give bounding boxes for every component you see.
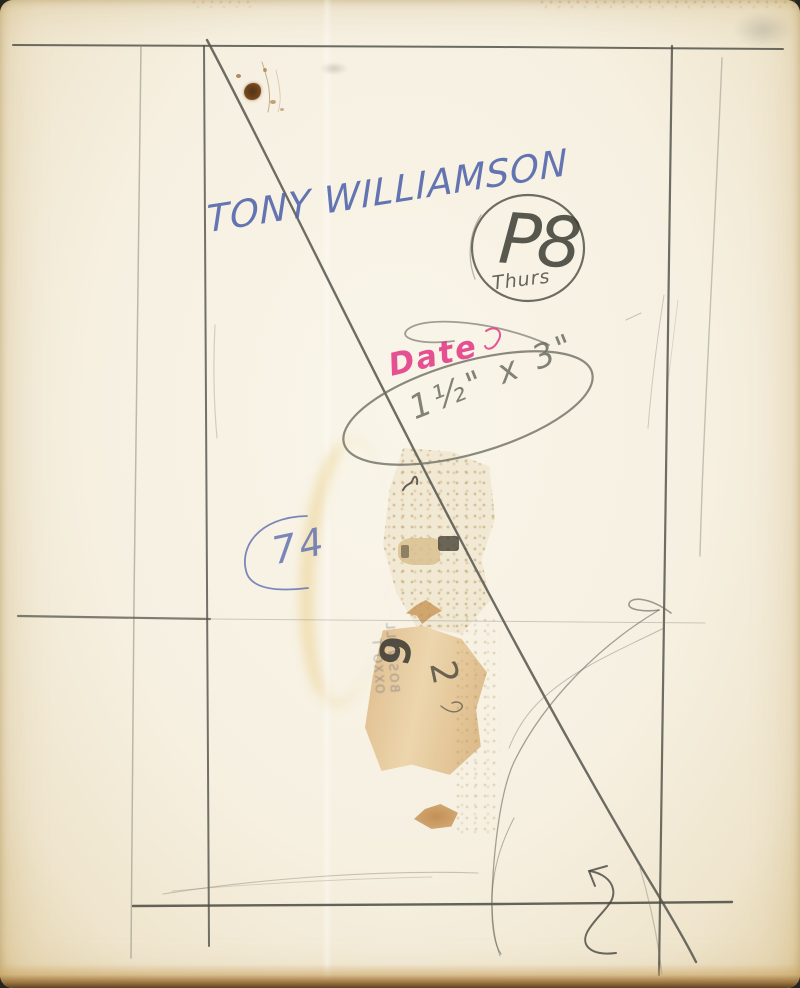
blue-paren-arc bbox=[245, 516, 308, 589]
small-tick-stroke bbox=[626, 313, 641, 320]
oval-top-squiggle bbox=[405, 322, 549, 345]
page-code-circle bbox=[472, 195, 584, 301]
paper-bottom-edge-shadow bbox=[0, 964, 800, 988]
rust-scratch-1 bbox=[262, 62, 270, 112]
residue-scribble bbox=[441, 702, 462, 712]
top-frame-line bbox=[13, 45, 783, 49]
upper-residue-mark bbox=[403, 477, 417, 490]
thin-left-curve bbox=[492, 818, 514, 956]
wide-bottom-arc-2 bbox=[172, 877, 432, 891]
size-note-oval bbox=[331, 328, 604, 488]
right-frame-vertical-line bbox=[659, 46, 672, 975]
left-frame-vertical-line bbox=[204, 46, 209, 946]
right-hatch-stroke-1 bbox=[648, 295, 664, 428]
pink-question-squiggle bbox=[485, 328, 500, 348]
photo-back-scan: TONY WILLIAMSON P8 Thurs Date 1½" x 3" 7… bbox=[0, 0, 800, 988]
pencil-marks-overlay bbox=[0, 0, 800, 988]
wide-bottom-arc-1 bbox=[163, 872, 478, 894]
bottom-frame-line bbox=[133, 902, 732, 906]
left-faint-vertical-line bbox=[131, 46, 141, 958]
left-pencil-scuff bbox=[214, 325, 217, 438]
middle-horizontal-line-faint bbox=[210, 619, 705, 623]
s-arrow-body bbox=[585, 871, 616, 954]
right-faint-vertical-line bbox=[700, 58, 722, 556]
main-diagonal-line bbox=[207, 40, 696, 962]
middle-horizontal-line-dark bbox=[18, 616, 210, 619]
rust-scratch-2 bbox=[276, 70, 280, 112]
